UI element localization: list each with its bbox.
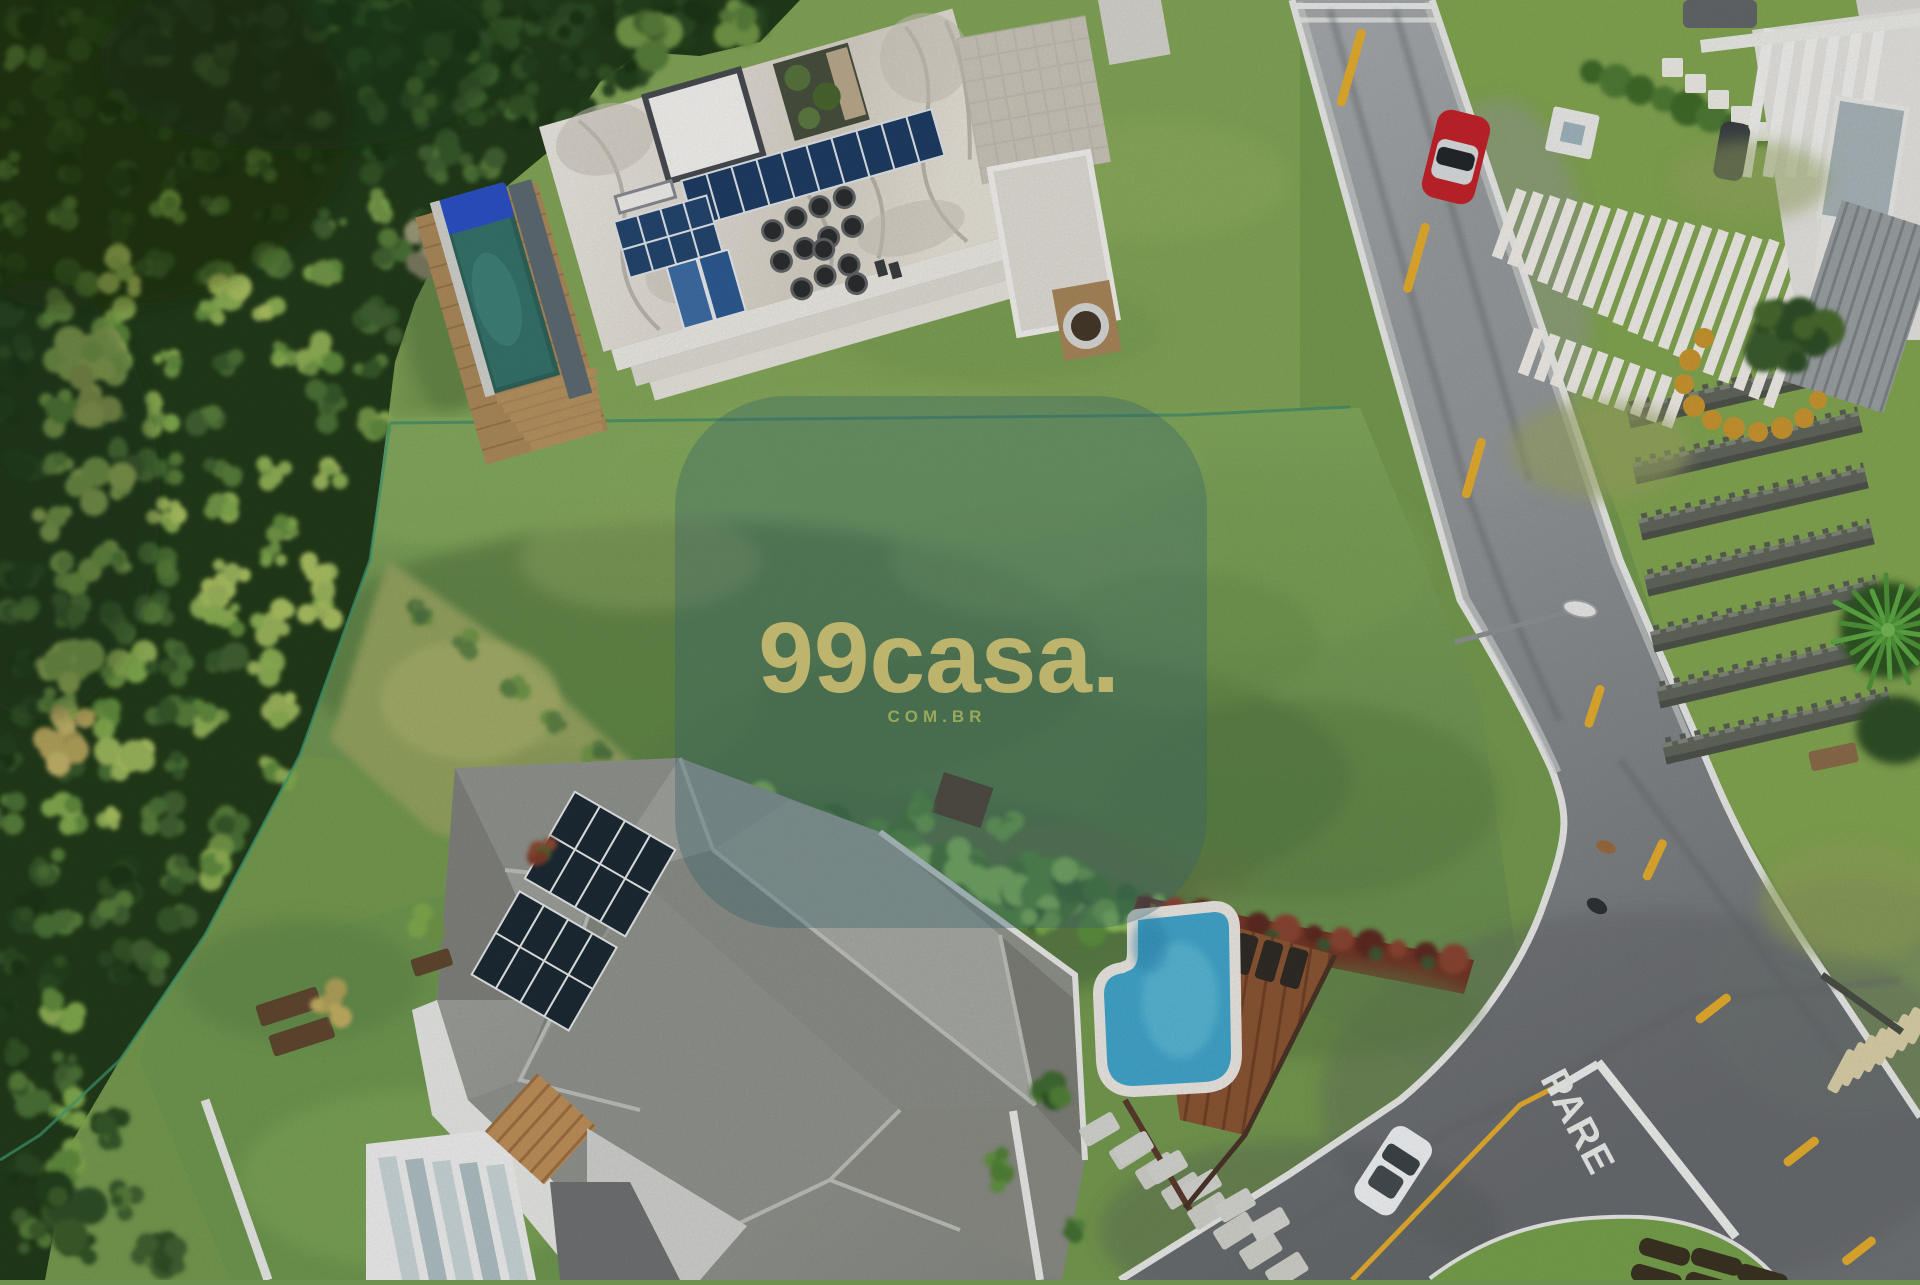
svg-text:COM.BR: COM.BR <box>888 707 987 726</box>
svg-text:99casa.: 99casa. <box>758 602 1119 714</box>
